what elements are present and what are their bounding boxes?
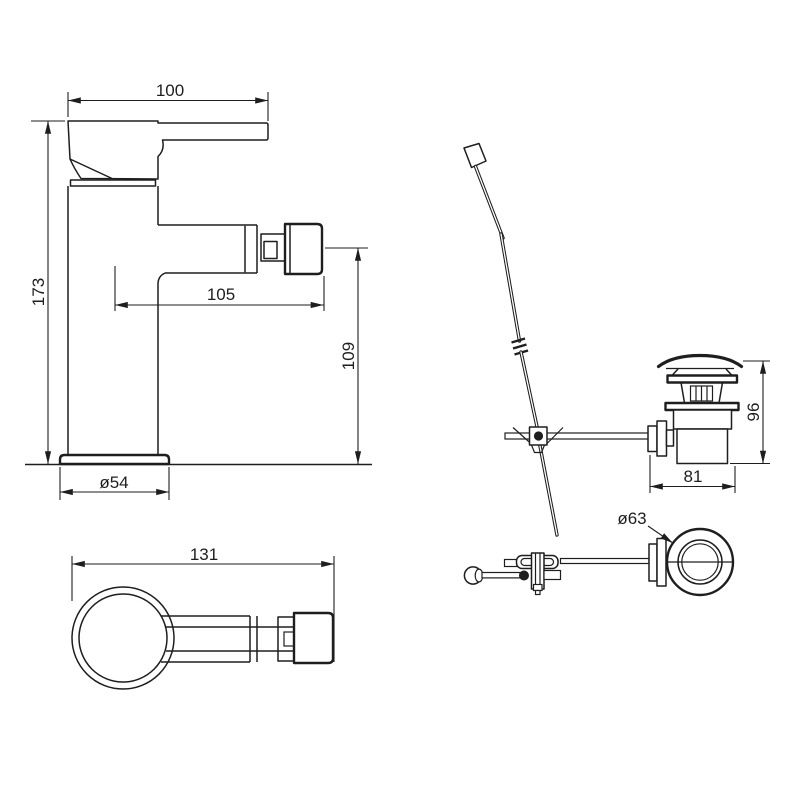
faucet-handle bbox=[68, 121, 268, 179]
drain-body bbox=[648, 356, 742, 464]
linkage-bar bbox=[505, 433, 650, 439]
dim-drain-width-label: 81 bbox=[684, 467, 703, 486]
drain-strainer-slots bbox=[691, 386, 713, 401]
dim-handle-length-label: 100 bbox=[156, 81, 184, 100]
pull-rod-knob bbox=[464, 144, 486, 168]
faucet-top-view: 131 bbox=[72, 545, 334, 689]
spout-joint-inner bbox=[264, 242, 277, 259]
dim-spout-reach-label: 105 bbox=[207, 285, 235, 304]
drain-top-view: ø63 bbox=[464, 509, 733, 595]
aerator-cap-top-view bbox=[294, 613, 333, 663]
dim-base-diameter: ø54 bbox=[60, 467, 169, 500]
pivot-ball bbox=[534, 431, 543, 440]
linkage-nut bbox=[648, 426, 657, 452]
pull-rod bbox=[464, 144, 557, 536]
cartridge-collar bbox=[71, 180, 156, 186]
dim-overall-height-label: 173 bbox=[29, 278, 48, 306]
base-plate bbox=[60, 455, 169, 464]
faucet-spout bbox=[158, 224, 322, 274]
body-flange-circle bbox=[72, 587, 174, 689]
faucet-side-view: 100 173 bbox=[25, 81, 372, 500]
dim-drain-flange-diameter: ø63 bbox=[617, 509, 673, 543]
faucet-body bbox=[68, 186, 165, 455]
pull-knob-top-view bbox=[464, 567, 529, 584]
pivot-joint bbox=[513, 427, 563, 453]
dim-spout-axis-height-label: 109 bbox=[339, 342, 358, 370]
dim-overall-height: 173 bbox=[29, 121, 65, 464]
dim-drain-flange-diameter-label: ø63 bbox=[617, 509, 646, 528]
dim-spout-axis-height: 109 bbox=[325, 248, 368, 464]
body-circle bbox=[79, 594, 167, 682]
dim-overall-length-label: 131 bbox=[190, 545, 218, 564]
linkage-rod-top-view bbox=[561, 559, 650, 564]
dim-drain-height-label: 96 bbox=[744, 403, 763, 422]
dim-handle-length: 100 bbox=[68, 81, 268, 121]
ball-joint bbox=[519, 571, 529, 581]
spout-top-view bbox=[161, 613, 333, 663]
technical-drawing-canvas: 100 173 bbox=[0, 0, 800, 800]
dim-base-diameter-label: ø54 bbox=[99, 473, 128, 492]
technical-drawing-page: 100 173 bbox=[0, 0, 800, 800]
drain-plug-cap bbox=[659, 356, 742, 367]
drain-side-view: 96 81 bbox=[464, 144, 770, 536]
